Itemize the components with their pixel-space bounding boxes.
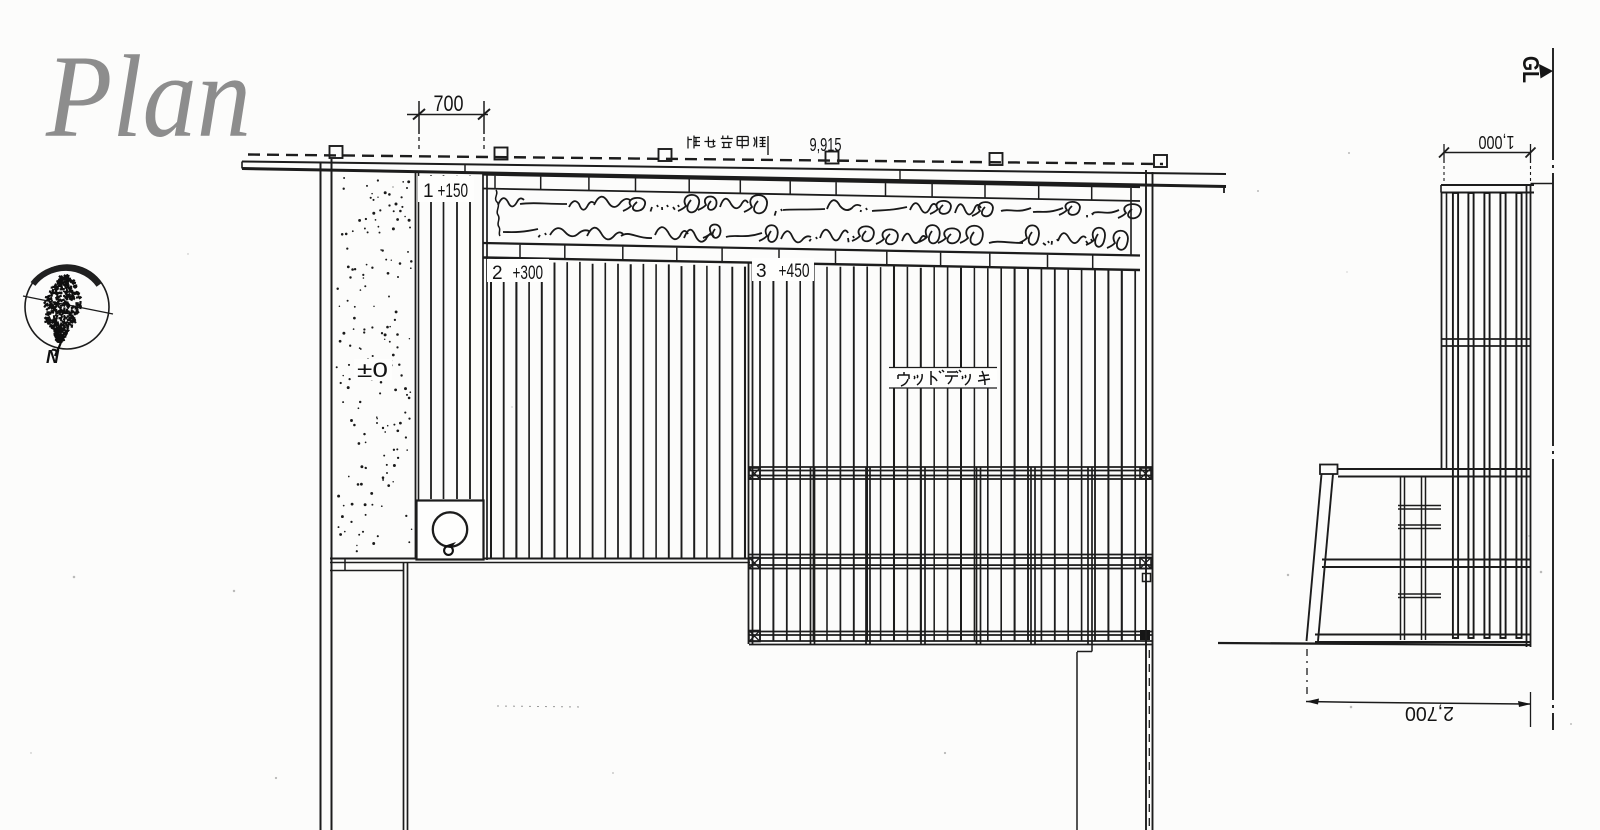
svg-text:±0: ±0: [357, 359, 388, 382]
svg-text:Plan: Plan: [45, 31, 251, 162]
svg-text:+150: +150: [438, 181, 469, 202]
svg-text:+450: +450: [779, 261, 810, 282]
svg-text:2,700: 2,700: [1405, 702, 1454, 724]
svg-text:1: 1: [423, 181, 434, 202]
svg-text:N: N: [46, 347, 60, 367]
svg-text:9,915: 9,915: [810, 135, 842, 155]
svg-text:3: 3: [756, 261, 767, 282]
svg-text:700: 700: [434, 91, 464, 116]
svg-text:+300: +300: [513, 263, 544, 284]
svg-text:1,000: 1,000: [1479, 132, 1515, 152]
svg-text:2: 2: [492, 263, 503, 284]
